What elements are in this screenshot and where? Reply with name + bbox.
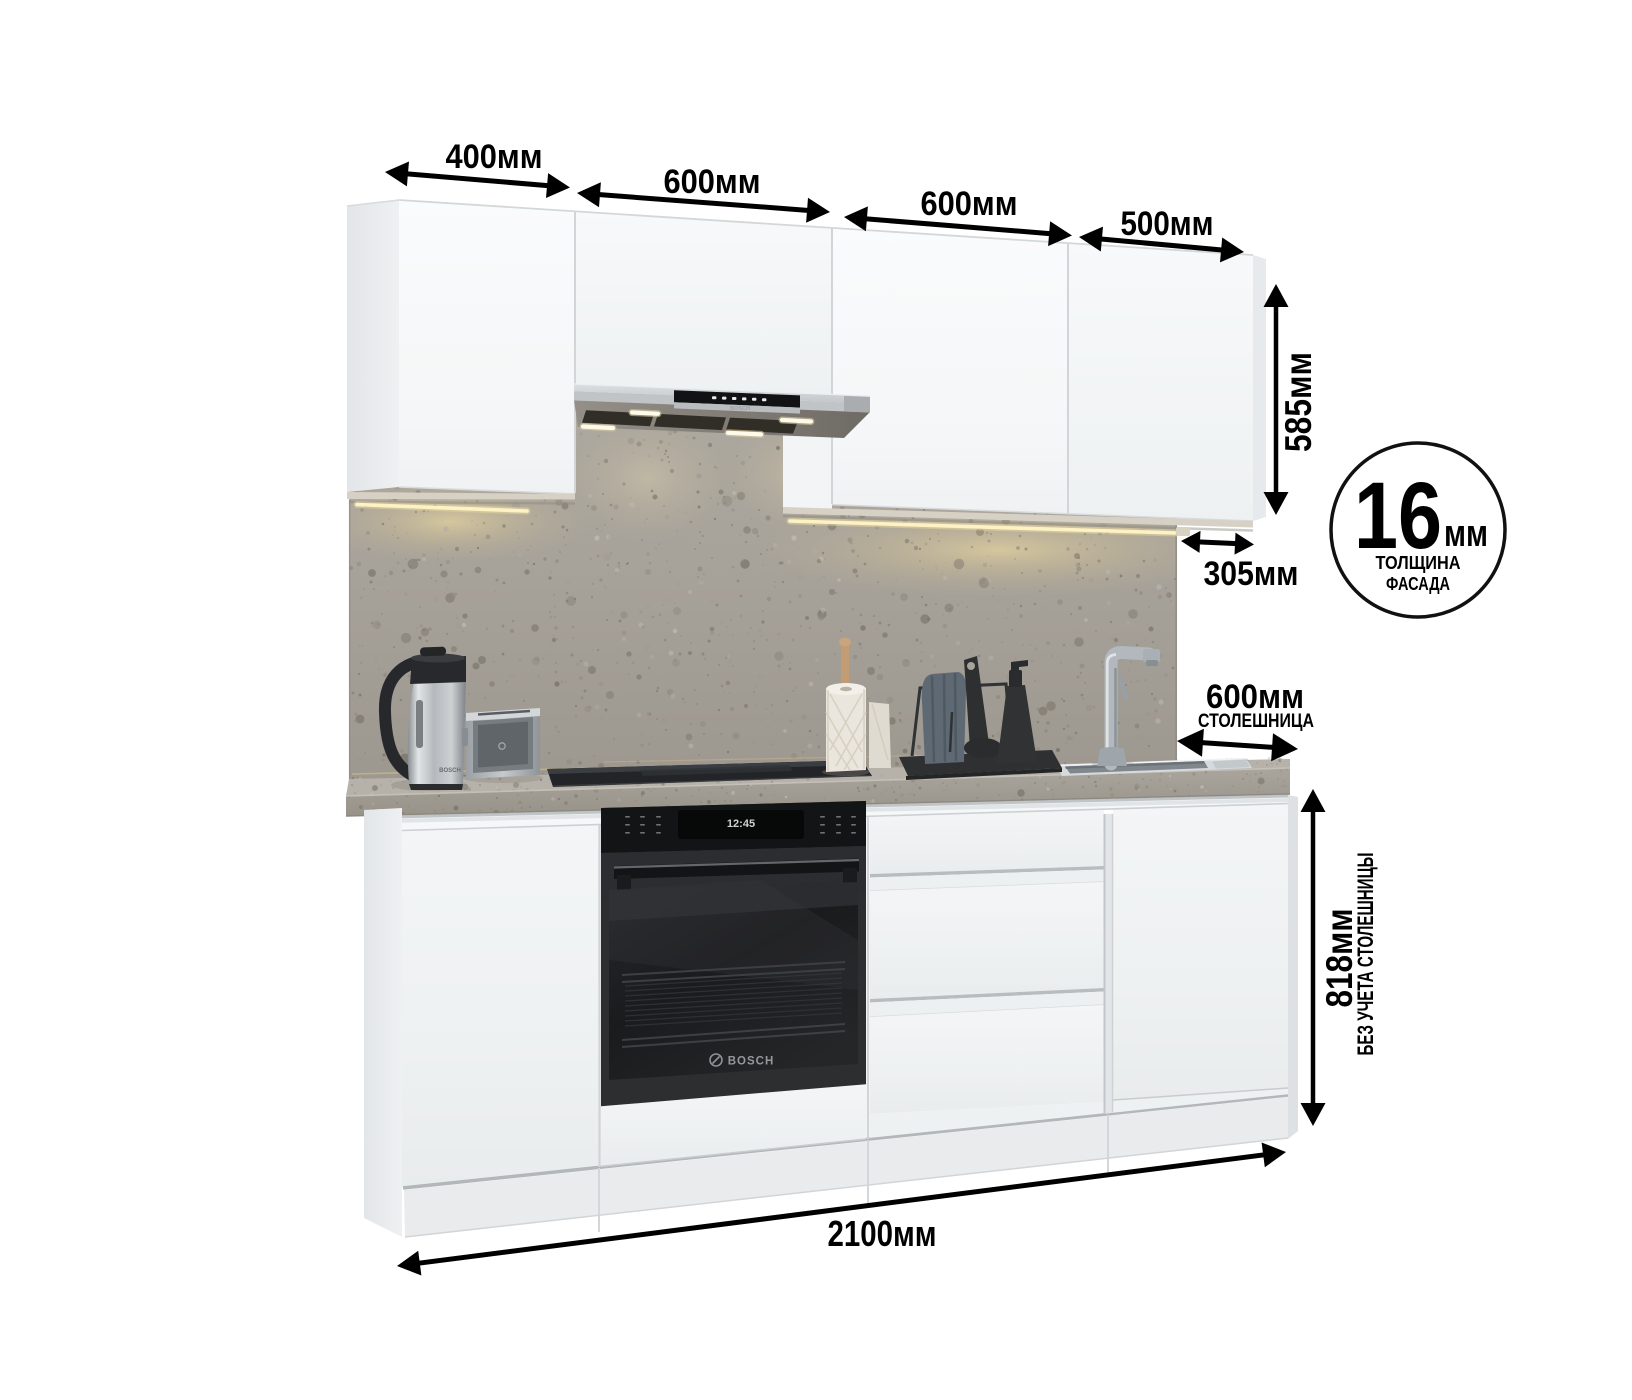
svg-text:2100мм: 2100мм [828,1213,937,1254]
svg-text:БЕЗ УЧЕТА СТОЛЕШНИЦЫ: БЕЗ УЧЕТА СТОЛЕШНИЦЫ [1353,853,1378,1056]
svg-text:305мм: 305мм [1204,555,1299,593]
svg-text:BOSCH: BOSCH [439,768,461,774]
svg-text:600мм: 600мм [921,185,1018,223]
svg-text:600мм: 600мм [664,163,761,201]
svg-text:ФАСАДА: ФАСАДА [1386,574,1450,594]
svg-text:585мм: 585мм [1278,352,1319,452]
svg-text:BOSCH: BOSCH [728,1056,775,1068]
svg-text:СТОЛЕШНИЦА: СТОЛЕШНИЦА [1198,711,1314,732]
svg-text:BOSCH: BOSCH [730,406,750,412]
svg-text:400мм: 400мм [446,138,543,176]
svg-text:12:45: 12:45 [727,818,755,830]
svg-text:ТОЛЩИНА: ТОЛЩИНА [1376,553,1461,573]
svg-text:500мм: 500мм [1121,205,1214,243]
svg-text:мм: мм [1444,513,1488,555]
